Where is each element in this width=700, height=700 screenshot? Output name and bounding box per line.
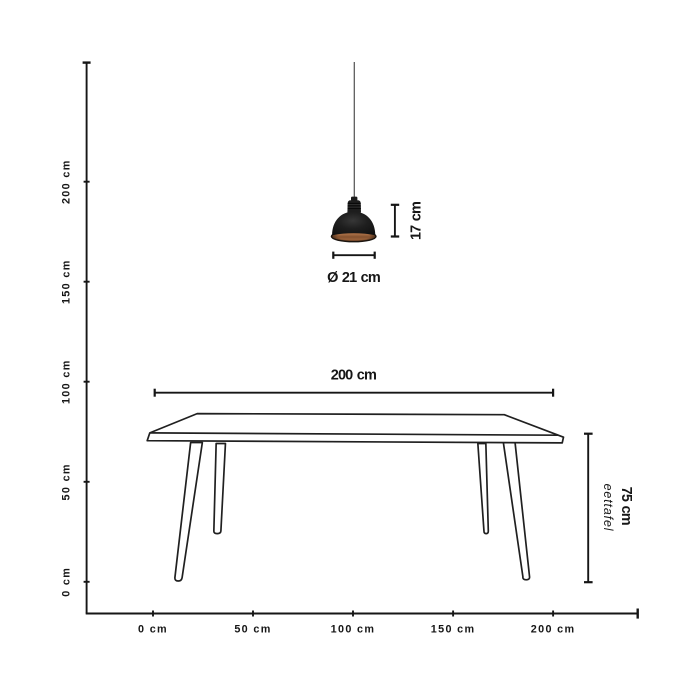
svg-text:150 cm: 150 cm	[61, 259, 73, 304]
svg-text:0 cm: 0 cm	[138, 624, 168, 636]
svg-text:50 cm: 50 cm	[61, 463, 73, 500]
svg-text:200 cm: 200 cm	[531, 624, 576, 636]
svg-text:200 cm: 200 cm	[331, 367, 376, 383]
svg-text:17 cm: 17 cm	[409, 202, 425, 240]
svg-text:200 cm: 200 cm	[61, 159, 73, 204]
svg-text:0 cm: 0 cm	[61, 567, 73, 597]
svg-text:eettafel: eettafel	[601, 484, 615, 532]
svg-text:Ø 21 cm: Ø 21 cm	[327, 270, 380, 286]
svg-text:150 cm: 150 cm	[431, 624, 476, 636]
svg-text:50 cm: 50 cm	[234, 624, 271, 636]
svg-text:100 cm: 100 cm	[331, 624, 376, 636]
svg-text:75 cm: 75 cm	[618, 487, 634, 525]
svg-text:100 cm: 100 cm	[61, 359, 73, 404]
